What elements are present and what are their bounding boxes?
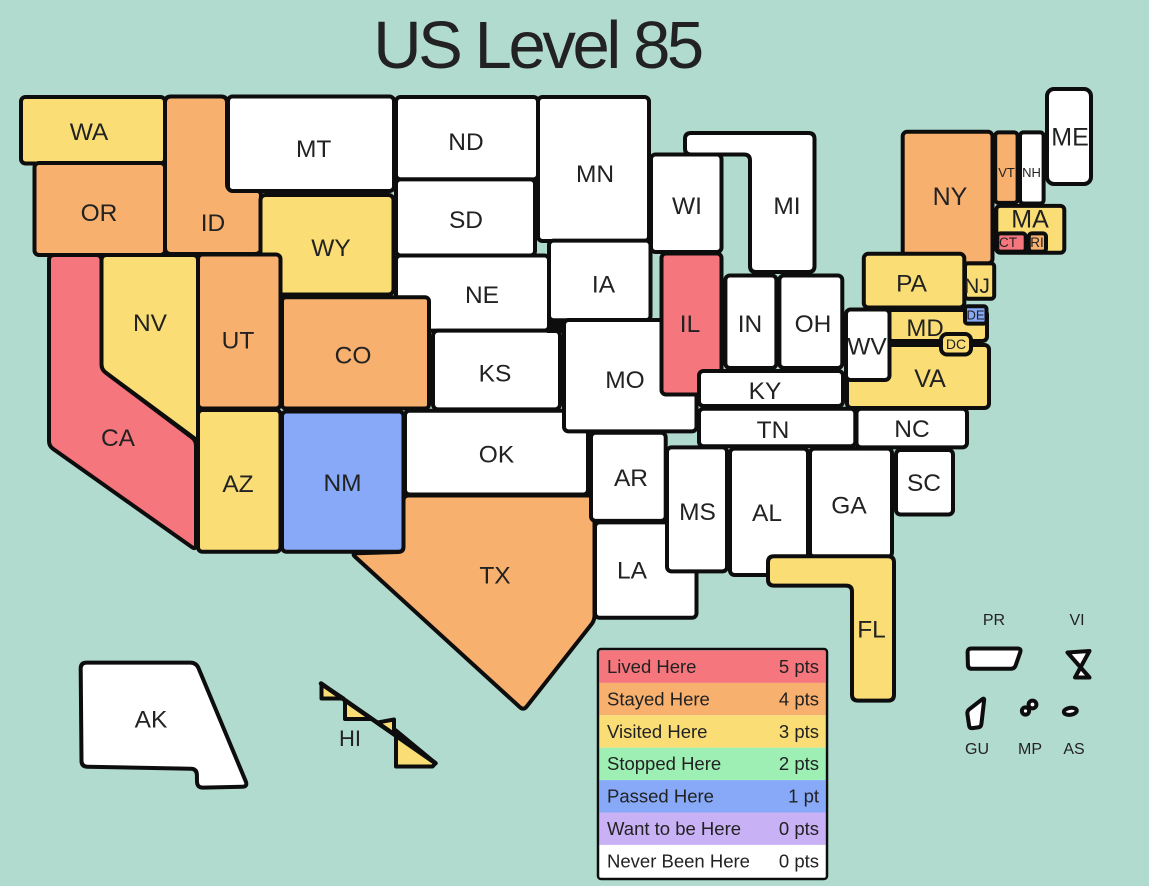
svg-text:ND: ND xyxy=(448,129,483,156)
svg-text:DC: DC xyxy=(946,336,966,352)
svg-text:MP: MP xyxy=(1018,741,1042,758)
svg-text:GU: GU xyxy=(965,741,989,758)
svg-text:KY: KY xyxy=(749,378,782,405)
svg-text:TX: TX xyxy=(479,563,510,590)
svg-text:VI: VI xyxy=(1069,612,1084,629)
svg-text:TN: TN xyxy=(757,417,790,444)
svg-text:1 pt: 1 pt xyxy=(788,786,819,807)
svg-text:OR: OR xyxy=(81,200,118,227)
svg-text:UT: UT xyxy=(222,328,255,355)
svg-text:Lived Here: Lived Here xyxy=(607,656,696,677)
svg-text:Stopped Here: Stopped Here xyxy=(607,753,721,774)
svg-text:AR: AR xyxy=(614,465,648,492)
svg-text:IA: IA xyxy=(592,272,616,299)
svg-text:MO: MO xyxy=(605,367,644,394)
svg-text:GA: GA xyxy=(831,493,867,520)
svg-text:VA: VA xyxy=(914,365,946,393)
svg-text:FL: FL xyxy=(857,617,886,644)
svg-text:MN: MN xyxy=(576,161,614,188)
svg-text:OK: OK xyxy=(479,442,515,469)
svg-text:NE: NE xyxy=(465,282,499,309)
svg-text:CA: CA xyxy=(101,425,136,452)
svg-text:CT: CT xyxy=(999,235,1017,250)
svg-text:WY: WY xyxy=(311,235,350,262)
svg-text:IN: IN xyxy=(738,311,763,338)
svg-text:LA: LA xyxy=(617,558,648,585)
svg-text:NH: NH xyxy=(1022,165,1041,180)
svg-text:NM: NM xyxy=(323,470,361,497)
svg-text:MA: MA xyxy=(1011,206,1049,234)
svg-text:5 pts: 5 pts xyxy=(779,656,819,677)
svg-text:AL: AL xyxy=(752,500,782,527)
svg-text:MD: MD xyxy=(906,315,943,342)
svg-text:MT: MT xyxy=(296,136,331,163)
svg-text:IL: IL xyxy=(680,311,700,338)
svg-text:MI: MI xyxy=(773,193,800,220)
svg-text:HI: HI xyxy=(339,726,361,751)
svg-text:Never Been Here: Never Been Here xyxy=(607,850,750,871)
svg-text:NY: NY xyxy=(933,183,968,211)
svg-text:SC: SC xyxy=(907,470,941,497)
svg-text:SD: SD xyxy=(449,207,483,234)
svg-text:NC: NC xyxy=(894,416,929,443)
svg-text:NV: NV xyxy=(133,310,168,337)
svg-text:AK: AK xyxy=(135,707,168,734)
svg-text:Stayed Here: Stayed Here xyxy=(607,688,710,709)
svg-text:AZ: AZ xyxy=(222,471,253,498)
svg-text:VT: VT xyxy=(998,165,1015,180)
svg-text:NJ: NJ xyxy=(964,275,990,298)
svg-text:WV: WV xyxy=(847,334,887,361)
svg-text:Want to be Here: Want to be Here xyxy=(607,818,741,839)
svg-text:AS: AS xyxy=(1063,741,1084,758)
svg-text:CO: CO xyxy=(335,343,372,370)
svg-text:ME: ME xyxy=(1051,124,1089,152)
svg-text:PR: PR xyxy=(983,612,1005,629)
svg-text:US Level 85: US Level 85 xyxy=(373,8,702,83)
svg-text:0 pts: 0 pts xyxy=(779,818,819,839)
svg-text:3 pts: 3 pts xyxy=(779,721,819,742)
svg-text:2 pts: 2 pts xyxy=(779,753,819,774)
svg-text:0 pts: 0 pts xyxy=(779,850,819,871)
svg-text:Passed Here: Passed Here xyxy=(607,786,714,807)
svg-text:RI: RI xyxy=(1030,235,1044,250)
svg-text:KS: KS xyxy=(479,361,512,388)
svg-text:MS: MS xyxy=(679,499,716,526)
svg-text:PA: PA xyxy=(896,271,928,298)
svg-text:DE: DE xyxy=(966,308,984,323)
svg-text:ID: ID xyxy=(201,210,226,237)
svg-text:WI: WI xyxy=(672,193,702,220)
svg-text:4 pts: 4 pts xyxy=(779,688,819,709)
svg-text:Visited Here: Visited Here xyxy=(607,721,707,742)
svg-text:WA: WA xyxy=(70,119,109,146)
svg-text:OH: OH xyxy=(795,311,832,338)
